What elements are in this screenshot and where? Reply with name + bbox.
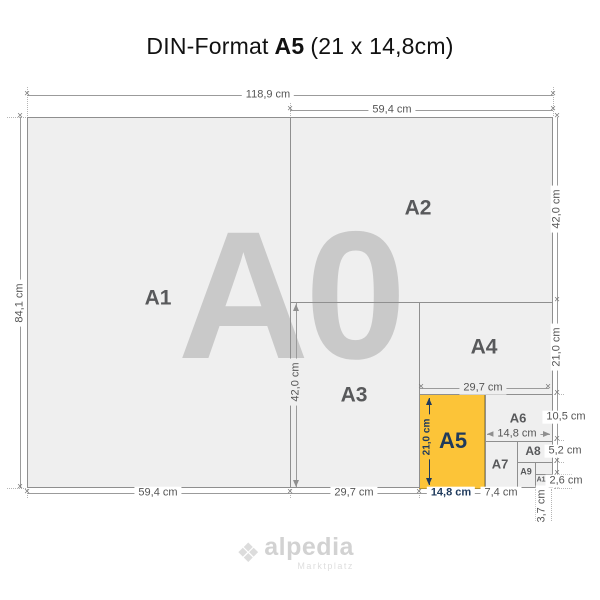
- din-format-diagram: DIN-FormatA5(21 x 14,8cm) A0 A1 A2 A3 A4…: [0, 0, 600, 600]
- dim-bottom-a9-width: 3,7 cm: [536, 485, 549, 526]
- dimension-arrow-icon: [543, 431, 550, 437]
- dimension-tick-icon: ×: [554, 389, 560, 399]
- dimension-tick-icon: ×: [545, 383, 551, 393]
- divider-a7-a8: [517, 441, 518, 488]
- label-a2: A2: [405, 198, 432, 219]
- dimension-tick-icon: ×: [416, 488, 422, 498]
- dim-inner-a3-height: 42,0 cm: [290, 358, 303, 405]
- divider-a6-a7: [485, 441, 553, 442]
- divider-a9-a10: [535, 462, 536, 488]
- divider-a3-a4: [419, 302, 420, 488]
- page-title: DIN-FormatA5(21 x 14,8cm): [0, 33, 600, 60]
- dim-inner-a5-height: 21,0 cm: [421, 415, 433, 460]
- title-prefix: DIN-Format: [146, 33, 268, 59]
- dimension-tick-icon: ×: [550, 90, 556, 100]
- dim-bottom-a1-width: 59,4 cm: [134, 487, 181, 500]
- dimension-tick-icon: ×: [554, 457, 560, 467]
- dimension-tick-icon: ×: [287, 488, 293, 498]
- logo-name: alpedia: [264, 535, 354, 560]
- dim-bottom-a5-width: 14,8 cm: [427, 487, 475, 500]
- alpedia-logo: ❖ alpedia Marktplatz: [236, 535, 354, 571]
- dim-inner-a6-width: 14,8 cm: [493, 428, 540, 441]
- logo-flower-icon: ❖: [236, 540, 260, 567]
- label-a9: A9: [520, 468, 532, 477]
- title-format-name: A5: [275, 33, 305, 59]
- dim-right-a8-height: 5,2 cm: [544, 445, 585, 458]
- dimension-tick-icon: ×: [17, 112, 23, 122]
- label-a8: A8: [525, 445, 540, 457]
- dimension-tick-icon: ×: [418, 383, 424, 393]
- dimension-tick-icon: ×: [287, 105, 293, 115]
- dimension-tick-icon: ×: [24, 90, 30, 100]
- dimension-arrow-icon: [293, 480, 299, 487]
- label-a1: A1: [145, 288, 172, 309]
- title-format-size: (21 x 14,8cm): [310, 33, 453, 59]
- dim-line-top-a2: [290, 110, 553, 111]
- ext-line: [551, 489, 552, 521]
- logo-tagline: Marktplatz: [297, 561, 354, 571]
- dimension-arrow-icon: [426, 398, 432, 405]
- dim-top-total: 118,9 cm: [242, 89, 294, 102]
- dimension-arrow-icon: [293, 304, 299, 311]
- dim-left-a0-height: 84,1 cm: [14, 279, 27, 326]
- dim-inner-a4-width: 29,7 cm: [459, 382, 506, 395]
- label-a7: A7: [492, 458, 509, 471]
- divider-a2-a3: [290, 302, 553, 303]
- label-a3: A3: [341, 385, 368, 406]
- dim-bottom-a3-width: 29,7 cm: [330, 487, 377, 500]
- dimension-tick-icon: ×: [17, 483, 23, 493]
- dimension-tick-icon: ×: [554, 296, 560, 306]
- dim-bottom-a7-width: 7,4 cm: [480, 487, 521, 500]
- dimension-tick-icon: ×: [24, 488, 30, 498]
- dimension-arrow-icon: [426, 478, 432, 485]
- dim-right-a10-height: 2,6 cm: [545, 475, 586, 488]
- dimension-tick-icon: ×: [554, 112, 560, 122]
- dimension-tick-icon: ×: [554, 435, 560, 445]
- dim-top-a2-width: 59,4 cm: [368, 104, 415, 117]
- label-a5: A5: [439, 430, 467, 452]
- dim-right-a4-height: 21,0 cm: [551, 323, 564, 370]
- dim-right-a6-height: 10,5 cm: [542, 411, 589, 424]
- label-a6: A6: [510, 412, 527, 425]
- dim-right-a2-height: 42,0 cm: [551, 185, 564, 232]
- label-a4: A4: [471, 337, 498, 358]
